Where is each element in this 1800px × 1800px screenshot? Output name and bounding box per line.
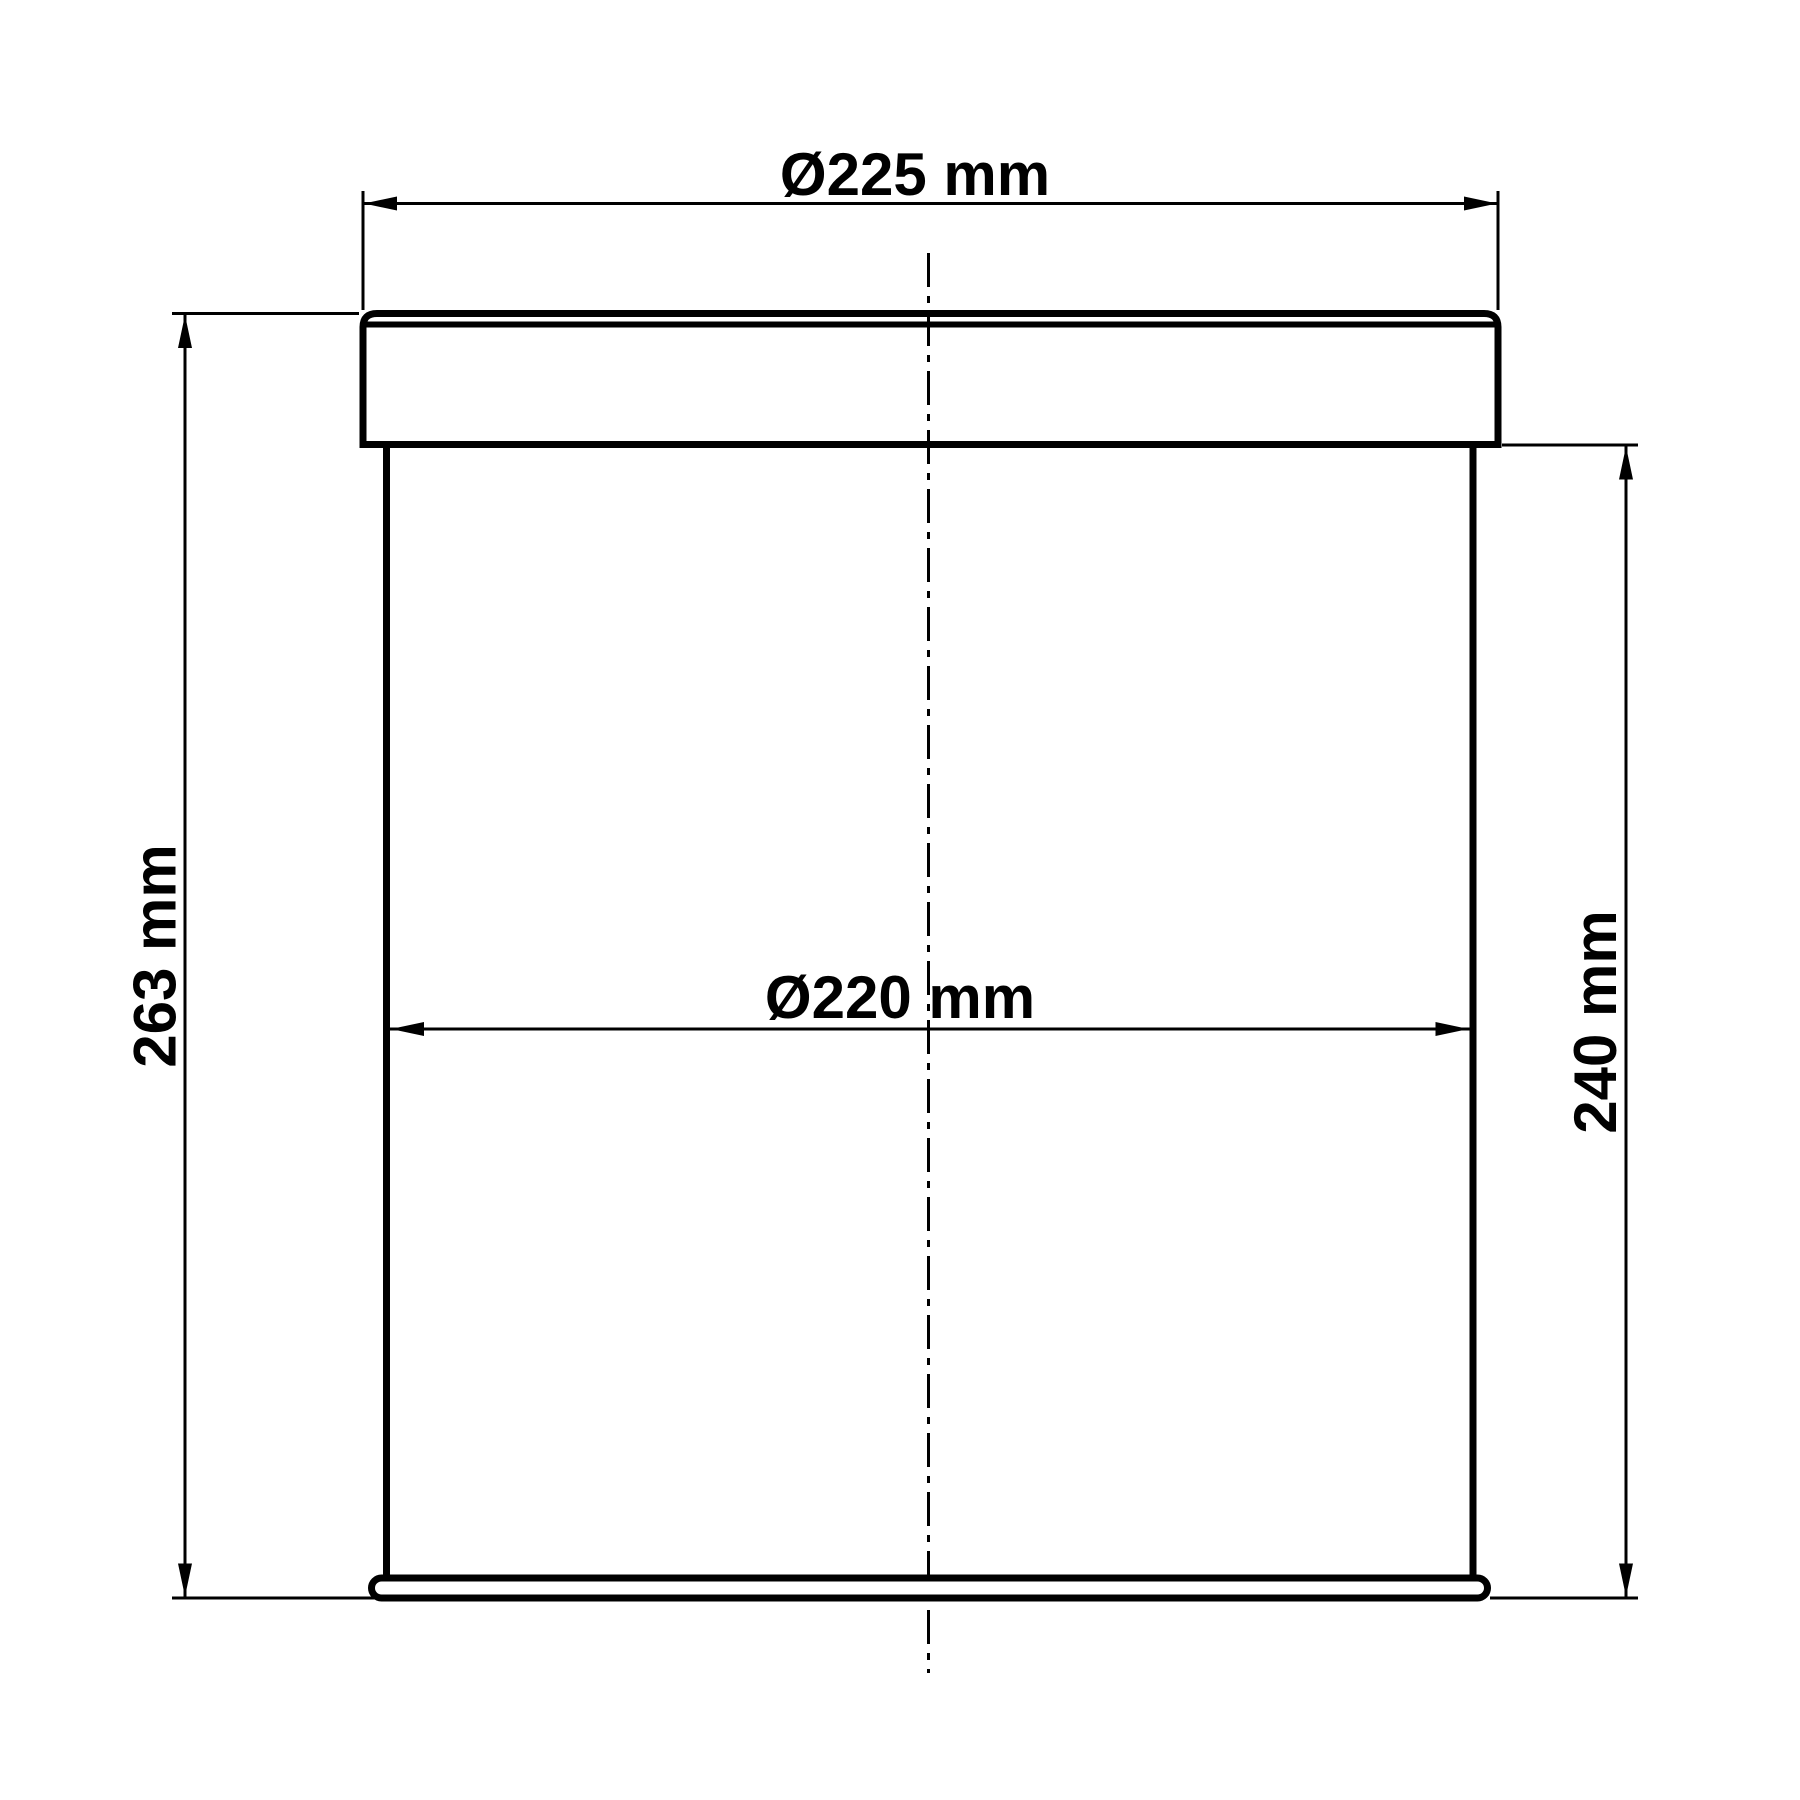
arrowhead-inner-right	[1436, 1022, 1469, 1036]
dim-label-inner-diameter: Ø220 mm	[765, 964, 1035, 1031]
arrowhead-overall-bottom	[178, 1564, 192, 1597]
arrowhead-overall-top	[178, 315, 192, 348]
base-rim-outline	[372, 1578, 1488, 1598]
arrowhead-body-bottom	[1619, 1564, 1633, 1597]
arrowhead-lid-left	[364, 197, 397, 211]
technical-drawing-canvas: Ø225 mm 263 mm 240 mm Ø220 mm	[0, 0, 1800, 1800]
arrowhead-body-top	[1619, 447, 1633, 480]
lid-outline	[363, 314, 1498, 445]
dim-label-body-height: 240 mm	[1562, 910, 1629, 1133]
arrowhead-lid-right	[1464, 197, 1497, 211]
dim-label-lid-diameter: Ø225 mm	[780, 141, 1050, 208]
dim-label-overall-height: 263 mm	[122, 844, 189, 1067]
arrowhead-inner-left	[391, 1022, 424, 1036]
